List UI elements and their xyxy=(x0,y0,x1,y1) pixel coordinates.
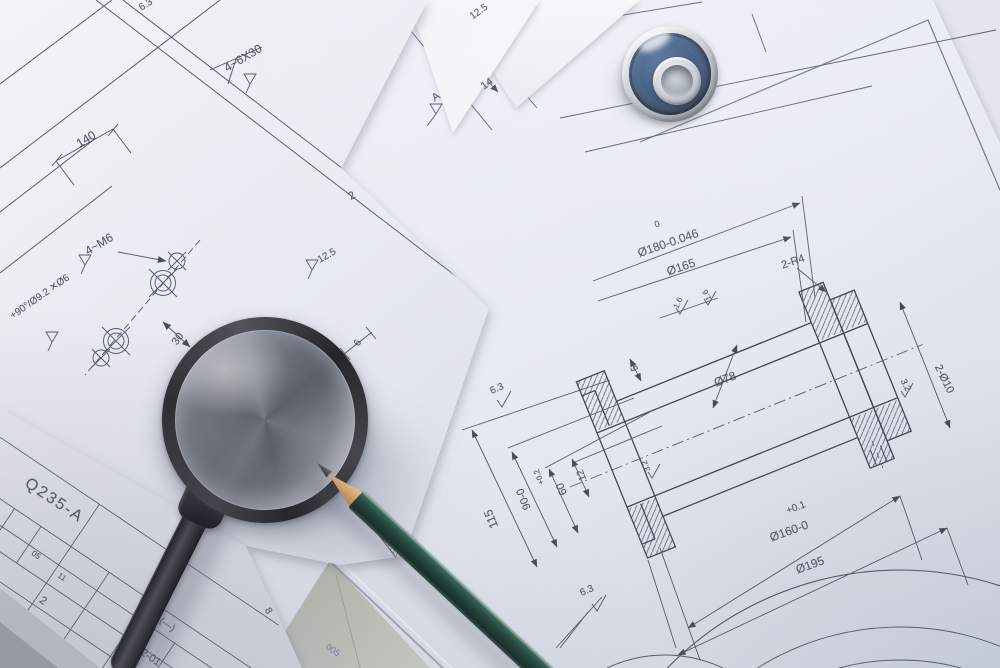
bearing-bore xyxy=(661,65,693,97)
photo-stage: 6.34~6X301404~M6+90°/Ø9.2 ✕Ø6306555-G6.3… xyxy=(0,0,1000,668)
drawing-linework xyxy=(0,0,1000,668)
ball-bearing xyxy=(622,26,718,122)
bearing-inner-ring xyxy=(653,57,701,105)
